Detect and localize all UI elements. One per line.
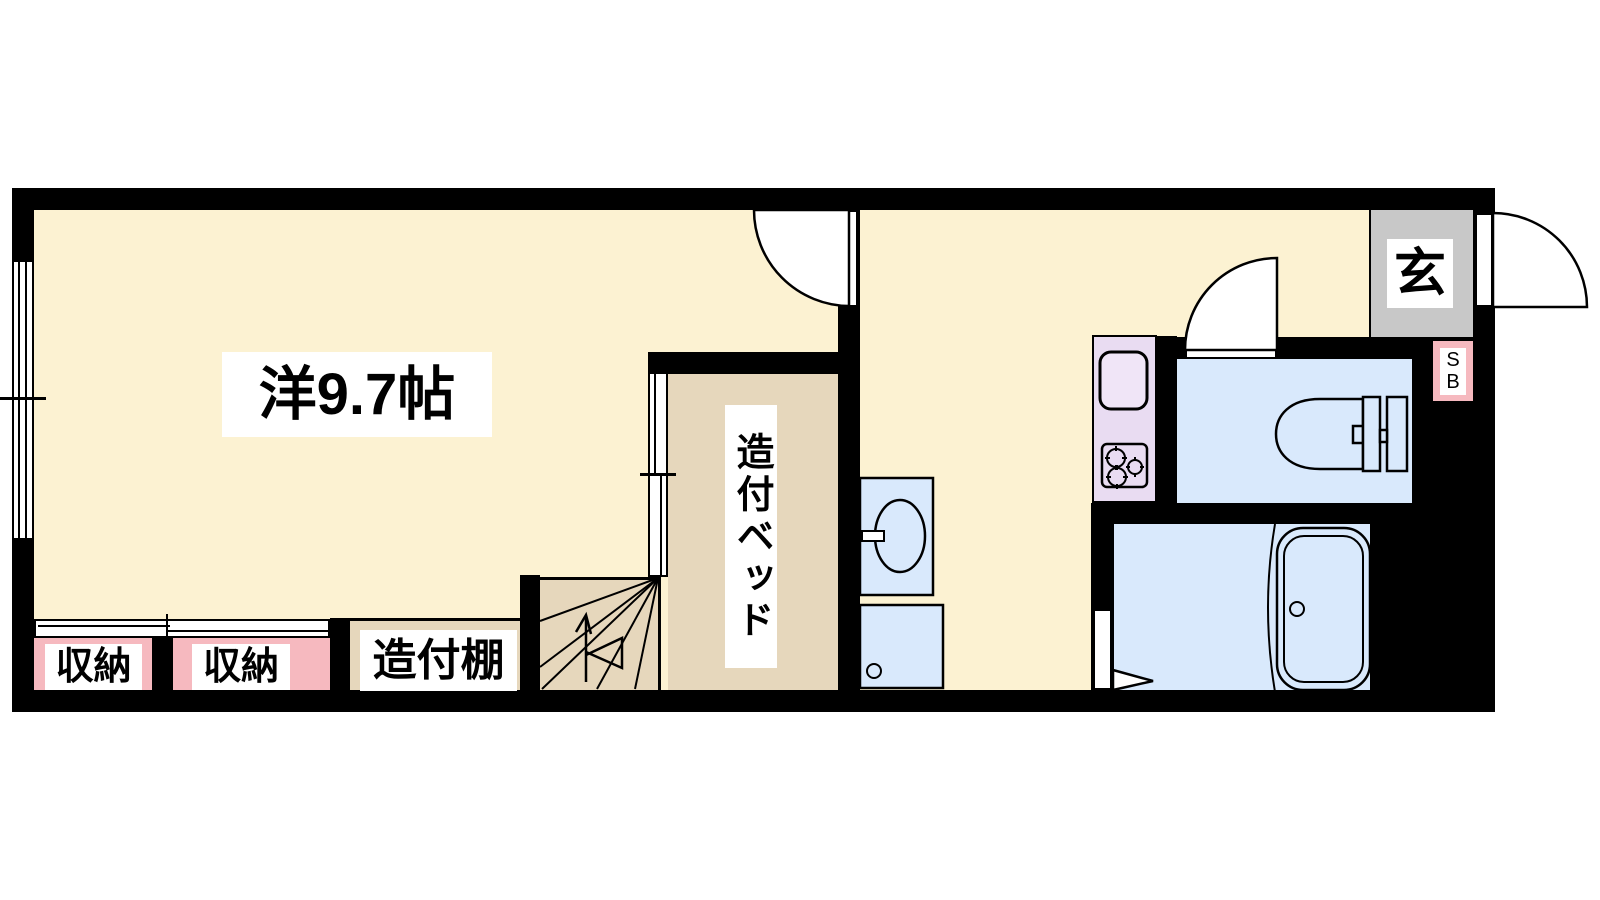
closet-slider-line-1 — [38, 625, 170, 627]
window-left — [12, 260, 34, 540]
wall-counter-right — [1157, 336, 1177, 503]
stairs-floor — [540, 577, 661, 690]
wall-bed-top — [648, 352, 860, 374]
wall-bottom — [12, 690, 1495, 712]
kitchen-counter — [1092, 335, 1157, 503]
partition-slider-center-tick — [640, 473, 676, 476]
built-in-shelf-label: 造付棚 — [360, 630, 517, 691]
built-in-bed-label: 造付ベッド — [725, 405, 777, 668]
closet-slider-center-tick — [166, 614, 168, 642]
main-room-door-leaf — [840, 210, 858, 307]
closet-sliding-doors — [34, 619, 330, 638]
shoe-box-label-b: B — [1446, 371, 1459, 393]
closet-slider-line-2 — [167, 630, 328, 632]
shoe-box-label-s: S — [1446, 349, 1459, 371]
wall-under-toilet — [1091, 503, 1473, 524]
wall-top — [12, 188, 1495, 210]
window-left-pane-line-1 — [18, 262, 20, 538]
bathroom-door-leaf — [1093, 609, 1112, 690]
window-left-pane-line-2 — [25, 262, 27, 538]
bathroom-floor — [1114, 524, 1370, 690]
entry-door-swing — [1493, 213, 1587, 307]
toilet-room-floor — [1177, 359, 1412, 503]
shoe-box: S B — [1433, 341, 1473, 401]
main-room-label: 洋9.7帖 — [222, 352, 492, 437]
partition-slider-line-2 — [660, 474, 662, 575]
wall-shelf-left — [330, 618, 350, 690]
closet-left-label: 収納 — [45, 644, 142, 690]
closet-right-label: 収納 — [192, 644, 290, 690]
wall-stairs-left — [520, 575, 540, 690]
wall-bath-right-mass — [1370, 524, 1473, 690]
partition-slider-line-1 — [654, 374, 656, 474]
entrance-label: 玄 — [1387, 239, 1453, 308]
toilet-door-leaf — [1185, 341, 1277, 359]
window-left-center-tick — [0, 397, 46, 400]
floorplan-canvas: 洋9.7帖 収納 収納 造付棚 造付ベッド 玄 S B — [0, 0, 1600, 900]
entry-door-leaf — [1475, 213, 1493, 307]
